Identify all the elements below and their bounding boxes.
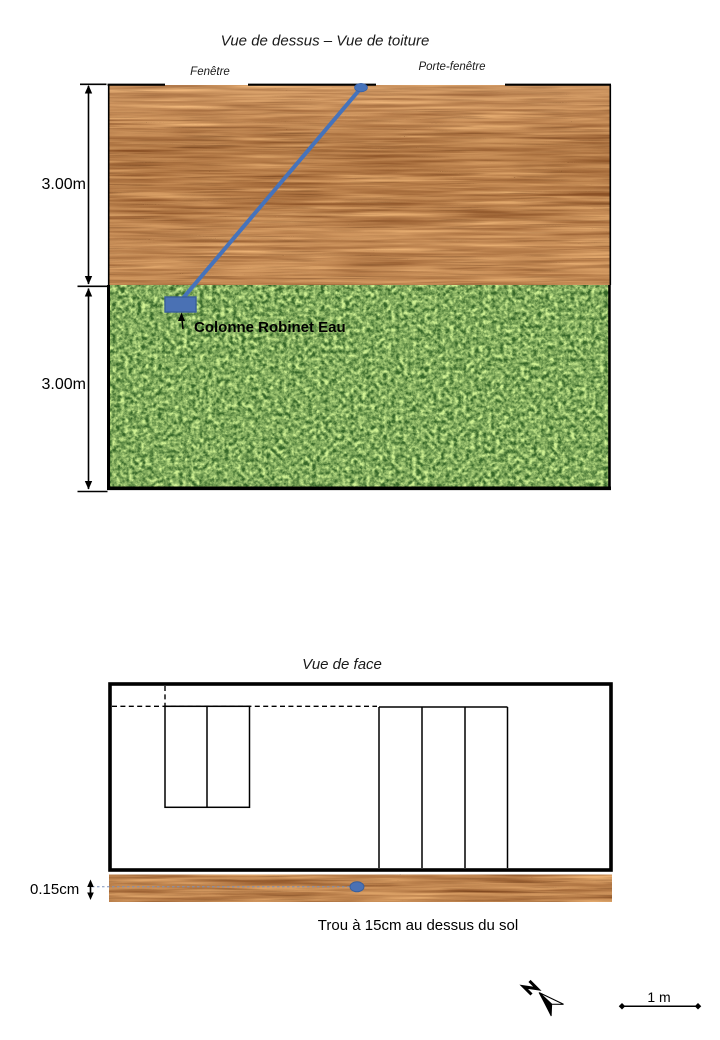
svg-text:0.15cm: 0.15cm <box>30 881 79 898</box>
svg-text:Vue de face: Vue de face <box>302 656 382 673</box>
svg-text:3.00m: 3.00m <box>42 376 86 393</box>
svg-text:3.00m: 3.00m <box>42 176 86 193</box>
svg-text:Trou à 15cm au dessus du sol: Trou à 15cm au dessus du sol <box>318 917 518 934</box>
svg-text:Porte-fenêtre: Porte-fenêtre <box>418 61 485 73</box>
svg-text:Fenêtre: Fenêtre <box>190 66 230 78</box>
svg-text:Colonne Robinet Eau: Colonne Robinet Eau <box>194 319 346 336</box>
svg-text:Vue de dessus – Vue de toiture: Vue de dessus – Vue de toiture <box>221 33 430 50</box>
svg-text:1 m: 1 m <box>647 989 670 1005</box>
